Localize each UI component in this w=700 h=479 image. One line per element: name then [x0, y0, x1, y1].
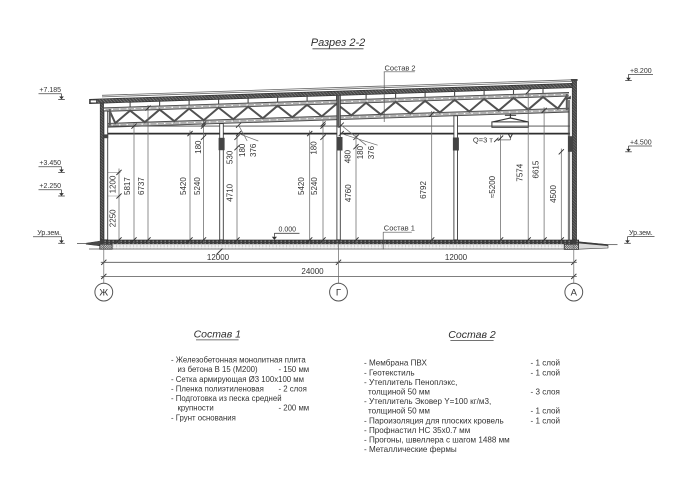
svg-text:Ур.зем.: Ур.зем. [37, 230, 61, 237]
svg-text:4710: 4710 [226, 183, 235, 201]
svg-text:- Железобетонная монолитная п: - Железобетонная монолитная плита [171, 356, 306, 365]
svg-text:- Геотекстиль: - Геотекстиль [364, 368, 415, 377]
svg-text:24000: 24000 [301, 267, 324, 276]
svg-text:- Прогоны, швеллера с шагом 14: - Прогоны, швеллера с шагом 1488 мм [364, 436, 510, 445]
svg-text:12000: 12000 [445, 253, 468, 262]
svg-text:12000: 12000 [207, 253, 230, 262]
svg-text:- 1 слой: - 1 слой [531, 368, 561, 377]
svg-text:- Утеплитель Пеноплэкс,: - Утеплитель Пеноплэкс, [364, 378, 457, 387]
svg-text:4760: 4760 [344, 184, 353, 202]
svg-text:- 2 слоя: - 2 слоя [279, 384, 307, 393]
svg-text:5420: 5420 [179, 177, 188, 195]
svg-text:толщиной 50 мм: толщиной 50 мм [368, 388, 430, 397]
svg-text:- 150 мм: - 150 мм [279, 365, 310, 374]
svg-text:480: 480 [343, 149, 352, 163]
svg-text:А: А [571, 287, 578, 298]
svg-text:крупности: крупности [178, 404, 214, 413]
svg-text:5240: 5240 [193, 177, 202, 195]
svg-text:180: 180 [310, 141, 319, 155]
svg-text:180: 180 [194, 140, 203, 154]
svg-text:+4.500: +4.500 [630, 139, 652, 146]
svg-text:+3.450: +3.450 [39, 160, 61, 167]
svg-text:+7.185: +7.185 [39, 87, 61, 94]
svg-text:6615: 6615 [532, 160, 541, 178]
svg-text:- Пленка полиэтиленовая: - Пленка полиэтиленовая [171, 384, 264, 393]
svg-text:2250: 2250 [108, 209, 117, 227]
svg-text:5420: 5420 [297, 177, 306, 195]
svg-text:376: 376 [249, 143, 258, 157]
svg-text:6737: 6737 [137, 177, 146, 195]
svg-text:Q=3 т: Q=3 т [473, 135, 493, 144]
svg-text:≈5200: ≈5200 [488, 175, 497, 198]
svg-text:Ж: Ж [99, 287, 108, 298]
svg-text:180: 180 [356, 145, 365, 159]
svg-text:- 1 слой: - 1 слой [531, 416, 561, 425]
svg-text:- Сетка армирующая Ø3 100х100: - Сетка армирующая Ø3 100х100 мм [171, 375, 304, 384]
svg-text:Разрез 2-2: Разрез 2-2 [311, 37, 366, 49]
svg-text:5817: 5817 [123, 177, 132, 195]
svg-text:5240: 5240 [310, 177, 319, 195]
svg-text:Ур.зем.: Ур.зем. [629, 230, 653, 237]
svg-text:+8.200: +8.200 [630, 68, 652, 75]
svg-text:376: 376 [367, 145, 376, 159]
svg-text:- Мембрана ПВХ: - Мембрана ПВХ [364, 359, 427, 368]
svg-text:- 1 слой: - 1 слой [531, 407, 561, 416]
svg-text:- Металлические фермы: - Металлические фермы [364, 445, 457, 454]
svg-text:- 1 слой: - 1 слой [531, 359, 561, 368]
svg-text:7574: 7574 [515, 163, 524, 181]
svg-text:4500: 4500 [549, 185, 558, 203]
svg-text:толщиной 50 мм: толщиной 50 мм [368, 407, 430, 416]
svg-text:Г: Г [336, 287, 341, 298]
svg-text:- Подготовка из песка средней: - Подготовка из песка средней [171, 394, 282, 403]
svg-text:- 200 мм: - 200 мм [279, 404, 310, 413]
svg-text:530: 530 [226, 150, 235, 164]
svg-text:6792: 6792 [419, 181, 428, 199]
svg-text:1200: 1200 [108, 175, 117, 193]
svg-text:Состав 2: Состав 2 [385, 63, 416, 72]
svg-text:Состав 2: Состав 2 [448, 329, 496, 341]
svg-text:- Профнастил НС 35х0.7 мм: - Профнастил НС 35х0.7 мм [364, 426, 470, 435]
svg-text:+2.250: +2.250 [39, 183, 61, 190]
svg-text:Состав 1: Состав 1 [194, 328, 241, 340]
svg-text:- 3 слоя: - 3 слоя [531, 388, 560, 397]
svg-text:из бетона В 15 (М200): из бетона В 15 (М200) [178, 365, 258, 374]
svg-text:Состав 1: Состав 1 [384, 224, 415, 233]
svg-text:- Грунт основания: - Грунт основания [171, 413, 236, 422]
svg-text:- Утеплитель Эковер Y=100 кг/м: - Утеплитель Эковер Y=100 кг/м3, [364, 397, 491, 406]
svg-text:180: 180 [238, 143, 247, 157]
svg-text:0.000: 0.000 [279, 226, 297, 233]
svg-text:- Пароизоляция для плоских кро: - Пароизоляция для плоских кровель [364, 416, 504, 425]
